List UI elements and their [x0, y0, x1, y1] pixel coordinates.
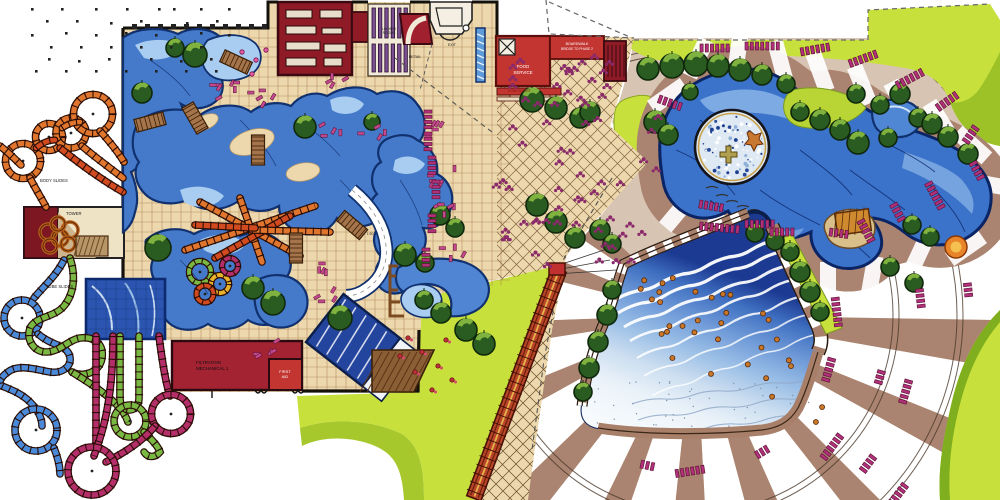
svg-text:RETAIL: RETAIL	[409, 55, 421, 59]
svg-text:ROOMS: ROOMS	[383, 31, 397, 35]
svg-text:TUBE SLIDES: TUBE SLIDES	[46, 284, 73, 289]
svg-text:BODY SLIDES: BODY SLIDES	[40, 178, 68, 183]
svg-text:FILTRATION: FILTRATION	[196, 360, 221, 365]
svg-text:SERVICE: SERVICE	[513, 70, 532, 75]
svg-text:FOOD COURT: FOOD COURT	[508, 89, 531, 93]
svg-text:EXIT: EXIT	[448, 43, 457, 47]
svg-text:BOARDWALK: BOARDWALK	[566, 42, 589, 46]
svg-text:MECHANICAL 1: MECHANICAL 1	[196, 366, 229, 371]
svg-text:BRIDGE TO PHASE 2: BRIDGE TO PHASE 2	[561, 47, 593, 51]
svg-text:FOOD: FOOD	[517, 64, 530, 69]
svg-text:TOWER: TOWER	[66, 211, 82, 216]
svg-text:1:50: 1:50	[367, 232, 374, 236]
svg-text:AID: AID	[282, 374, 289, 379]
